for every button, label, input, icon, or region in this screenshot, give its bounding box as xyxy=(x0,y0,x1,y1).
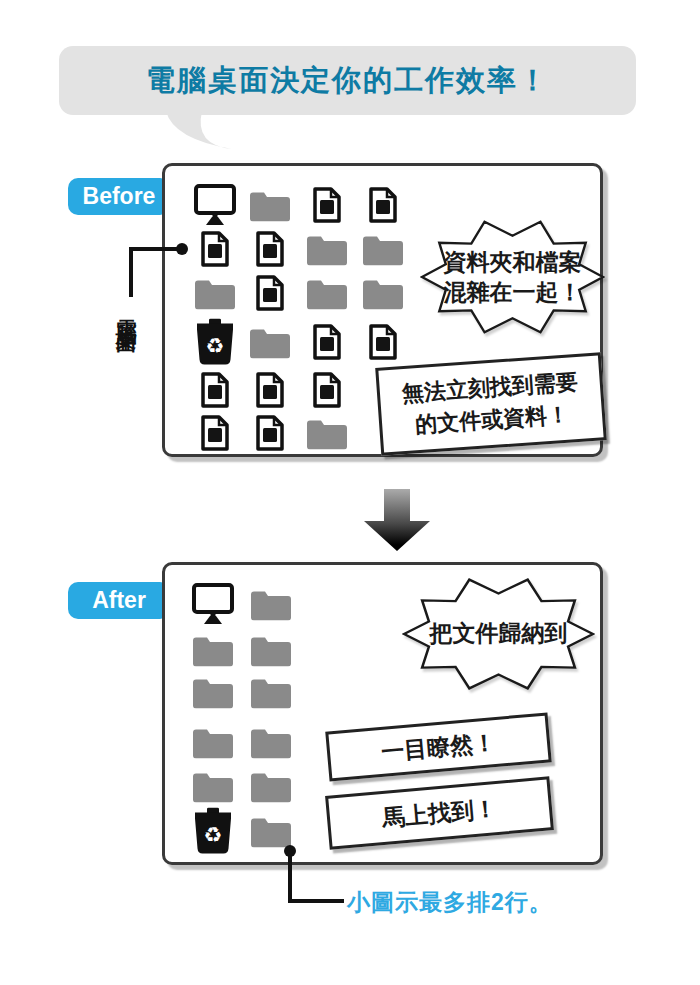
folder-icon xyxy=(191,726,235,759)
footnote-line-vertical xyxy=(288,851,292,903)
document-icon xyxy=(200,414,230,452)
svg-text:♻: ♻ xyxy=(204,823,223,847)
after-burst-bubble: 把文件歸納到 xyxy=(402,575,595,693)
folder-icon xyxy=(193,277,237,310)
folder-icon xyxy=(191,676,235,709)
document-icon xyxy=(255,371,285,409)
folder-icon xyxy=(361,233,405,266)
document-icon xyxy=(255,414,285,452)
folder-icon xyxy=(249,634,293,667)
folder-icon xyxy=(249,588,293,621)
monitor-icon xyxy=(194,184,236,226)
before-label-text: Before xyxy=(83,183,156,210)
document-icon xyxy=(312,186,342,224)
folder-icon xyxy=(305,417,349,450)
title-banner: 電腦桌面決定你的工作效率！ xyxy=(59,46,636,115)
after-burst-text: 把文件歸納到 xyxy=(402,575,595,693)
before-label: Before xyxy=(68,178,170,215)
before-burst-bubble: 資料夾和檔案 混雜在一起！ xyxy=(420,217,605,337)
callout-line-horizontal xyxy=(129,247,182,251)
after-sign2-text: 馬上找到！ xyxy=(381,792,498,834)
document-icon xyxy=(255,230,285,268)
document-icon xyxy=(312,323,342,361)
document-icon xyxy=(255,274,285,312)
before-burst-text: 資料夾和檔案 混雜在一起！ xyxy=(420,217,605,337)
folder-icon xyxy=(248,189,292,222)
desktop-caption: 電腦桌面 xyxy=(112,302,140,322)
after-burst-line1: 把文件歸納到 xyxy=(430,619,568,647)
svg-text:♻: ♻ xyxy=(206,334,225,358)
folder-icon xyxy=(249,770,293,803)
folder-icon xyxy=(249,815,293,848)
footnote-line-horizontal xyxy=(288,899,344,903)
folder-icon xyxy=(305,233,349,266)
recycle-bin-icon: ♻ xyxy=(195,319,235,366)
monitor-icon xyxy=(192,583,234,625)
after-label: After xyxy=(68,582,170,619)
before-burst-line2: 混雜在一起！ xyxy=(444,278,582,306)
document-icon xyxy=(200,230,230,268)
folder-icon xyxy=(191,770,235,803)
after-label-text: After xyxy=(92,587,146,614)
page-title: 電腦桌面決定你的工作效率！ xyxy=(146,61,549,101)
document-icon xyxy=(200,371,230,409)
document-icon xyxy=(312,371,342,409)
folder-icon xyxy=(248,326,292,359)
illustration-page: 電腦桌面決定你的工作效率！ Before ♻ 資料夾和檔案 混雜在一起！ 無法立… xyxy=(0,0,700,985)
banner-tail-shape xyxy=(160,111,238,151)
callout-line-vertical xyxy=(129,247,133,297)
footnote-text: 小圖示最多排2行。 xyxy=(347,887,553,918)
folder-icon xyxy=(361,277,405,310)
after-sign1-text: 一目瞭然！ xyxy=(380,726,497,768)
down-arrow-icon xyxy=(364,489,430,552)
folder-icon xyxy=(191,634,235,667)
before-burst-line1: 資料夾和檔案 xyxy=(444,248,582,276)
folder-icon xyxy=(249,726,293,759)
folder-icon xyxy=(249,676,293,709)
recycle-bin-icon: ♻ xyxy=(193,808,233,855)
folder-icon xyxy=(305,277,349,310)
before-note: 無法立刻找到需要 的文件或資料！ xyxy=(375,352,607,456)
document-icon xyxy=(368,323,398,361)
document-icon xyxy=(368,186,398,224)
